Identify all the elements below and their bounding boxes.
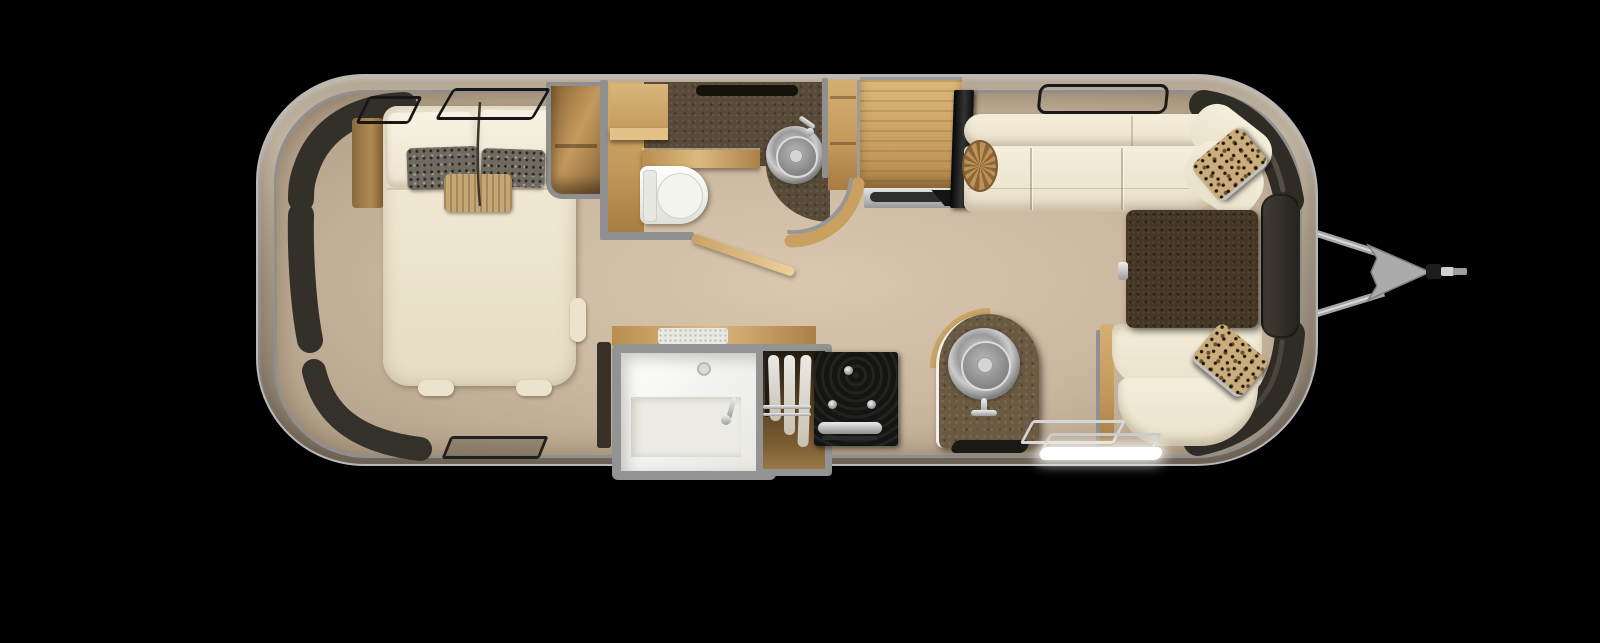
seat-seam-1 <box>1030 148 1032 210</box>
stove-knob-1 <box>844 366 853 375</box>
stove-knob-2 <box>828 400 837 409</box>
jack-bar <box>1441 267 1454 276</box>
coupler <box>1426 264 1442 279</box>
wardrobe-shelf <box>555 144 597 148</box>
cabinet-end-panel <box>597 342 611 448</box>
cabinet-front-edge <box>610 128 668 140</box>
pantry-shelf-2 <box>830 142 856 145</box>
round-lavatory-sink <box>766 126 824 184</box>
trailer-floorplan-scene <box>0 0 1600 643</box>
kitchen-sink-hub <box>977 357 993 373</box>
bed-foot-right <box>516 380 552 396</box>
bedroom-bottom-window-icon <box>441 436 548 459</box>
refrigerator-cabinet <box>860 80 962 188</box>
nightstand <box>352 118 384 208</box>
floor-mat <box>950 440 1031 453</box>
tan-accent-pillow <box>444 174 512 212</box>
bathroom-left-wall <box>600 80 608 240</box>
closet-rod-2 <box>763 413 811 416</box>
kitchen-faucet-handle <box>971 410 997 416</box>
lounge-top-window-icon <box>1036 84 1169 114</box>
bed-side-ledge <box>570 298 586 342</box>
dinette-table <box>1126 210 1258 328</box>
closet-rod-1 <box>763 405 811 409</box>
toilet-tank <box>643 170 657 222</box>
bathroom-vent-slot-icon <box>696 85 798 96</box>
oven-slot <box>822 436 878 440</box>
hanging-towel-2 <box>784 355 795 435</box>
vent-slot <box>870 192 944 202</box>
stove-knob-3 <box>867 400 876 409</box>
oven-handle <box>818 422 882 434</box>
bathroom-bottom-wall <box>600 232 694 240</box>
tongue-plate <box>1368 245 1430 300</box>
table-mount-tab <box>1118 262 1128 280</box>
front-right-side-window-icon <box>1261 194 1300 338</box>
lav-faucet-handle <box>806 128 814 136</box>
hanging-towel-1 <box>768 355 781 421</box>
hanging-towel-3 <box>797 355 811 447</box>
backrest-split <box>1131 116 1133 146</box>
seat-seam-2 <box>1121 148 1123 210</box>
shower-drain <box>697 362 711 376</box>
shower-stall <box>612 344 776 480</box>
pantry-column <box>828 80 858 190</box>
pantry-shelf-1 <box>830 96 856 99</box>
bathroom-upper-cabinet <box>610 84 668 130</box>
lav-sink-drain <box>789 149 803 163</box>
skylight-inset <box>658 328 728 344</box>
range-stove <box>814 352 898 446</box>
wicker-pouf <box>962 140 998 192</box>
led-step-light <box>1038 447 1163 460</box>
shower-bench <box>631 397 741 457</box>
toilet <box>640 166 708 224</box>
bed-foot-left <box>418 380 454 396</box>
round-kitchen-sink <box>948 328 1020 400</box>
toilet-bowl <box>657 173 703 219</box>
bedroom-open-window-large-icon <box>435 88 551 120</box>
shower-wand-head <box>721 415 731 425</box>
